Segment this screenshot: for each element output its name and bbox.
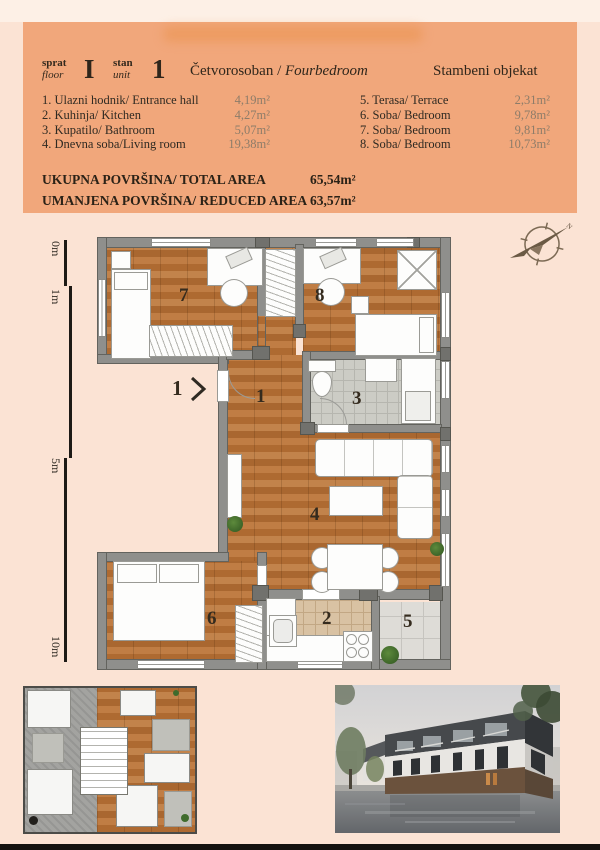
- floor-label: sprat floor: [42, 57, 66, 81]
- building-render: [335, 685, 560, 833]
- room-list-item: 8. Soba/ Bedroom10,73m²: [360, 137, 550, 152]
- compass-north-label: N: [565, 222, 574, 231]
- wall-left-lower: [98, 553, 106, 669]
- shower-tray: [406, 392, 430, 420]
- unit-label: stan unit: [113, 57, 133, 81]
- mini-staircase: [81, 728, 127, 794]
- window: [442, 446, 449, 472]
- mini-room: [28, 691, 70, 727]
- room-list-left: 1. Ulazni hodnik/ Entrance hall4,19m² 2.…: [42, 93, 270, 152]
- nightstand: [352, 297, 368, 313]
- sink-basin: [274, 620, 292, 642]
- pillow: [420, 318, 433, 352]
- mini-plant: [181, 814, 189, 822]
- wardrobe: [150, 326, 232, 356]
- room-list-right: 5. Terasa/ Terrace2,31m² 6. Soba/ Bedroo…: [360, 93, 550, 152]
- chair: [221, 280, 247, 306]
- mini-room: [33, 734, 63, 762]
- entrance-number: 1: [172, 376, 183, 401]
- room-name: 4. Dnevna soba/Living room: [42, 137, 186, 152]
- room-list-item: 5. Terasa/ Terrace2,31m²: [360, 93, 550, 108]
- mini-plant: [29, 816, 38, 825]
- scale-bar-segment: [64, 240, 67, 286]
- plan-label-bath: 3: [352, 388, 362, 410]
- plan-label-hall: 1: [256, 386, 266, 408]
- room-list-item: 4. Dnevna soba/Living room19,38m²: [42, 137, 270, 152]
- room-name: 7. Soba/ Bedroom: [360, 123, 451, 138]
- wardrobe: [398, 251, 436, 289]
- door-opening-entrance: [218, 371, 228, 401]
- window: [152, 239, 210, 246]
- mini-room: [153, 720, 189, 750]
- door-opening-bath: [318, 425, 348, 432]
- burner: [359, 648, 368, 657]
- terrace-door: [442, 534, 449, 586]
- unit-label-en: unit: [113, 69, 133, 81]
- page-footer-rule: [0, 844, 600, 850]
- plan-label-kitchen: 2: [322, 608, 332, 630]
- wall-pillar: [430, 586, 442, 600]
- total-area-value: 65,54m²: [310, 172, 356, 188]
- floor-value: I: [84, 54, 95, 85]
- wall-pillar: [441, 348, 450, 360]
- mini-room: [121, 691, 155, 715]
- room-name: 1. Ulazni hodnik/ Entrance hall: [42, 93, 199, 108]
- window: [138, 661, 204, 668]
- scale-label-1m: 1m: [48, 289, 63, 304]
- apartment-type: Četvorosoban / Fourbedroom: [190, 63, 368, 80]
- room-name: 6. Soba/ Bedroom: [360, 108, 451, 123]
- window: [442, 362, 449, 398]
- wall-room6-top: [98, 553, 228, 561]
- room-area: 4,27m²: [235, 108, 270, 123]
- room-list-item: 2. Kuhinja/ Kitchen4,27m²: [42, 108, 270, 123]
- wall-pillar: [256, 238, 269, 247]
- wall-hall-bed8: [296, 245, 303, 333]
- building-label: Stambeni objekat: [433, 63, 538, 80]
- pillow: [118, 565, 156, 582]
- scale-bar-segment: [64, 458, 67, 662]
- page-top-margin: [0, 0, 600, 22]
- coffee-table: [330, 487, 382, 515]
- room-name: 5. Terasa/ Terrace: [360, 93, 448, 108]
- dining-table: [328, 545, 382, 589]
- scale-bar-segment: [69, 286, 72, 458]
- sofa: [316, 440, 432, 476]
- scale-label-5m: 5m: [48, 458, 63, 473]
- mini-room: [145, 754, 189, 782]
- plant-icon: [430, 542, 444, 556]
- plan-label-bed8: 8: [315, 285, 325, 307]
- floor-label-en: floor: [42, 69, 66, 81]
- room-area: 10,73m²: [508, 137, 550, 152]
- scale-label-10m: 10m: [48, 636, 63, 657]
- room-area: 4,19m²: [235, 93, 270, 108]
- plan-label-terrace: 5: [403, 611, 413, 633]
- wall-pillar: [253, 586, 268, 600]
- compass-icon: N: [506, 214, 574, 272]
- room-name: 3. Kupatilo/ Bathroom: [42, 123, 155, 138]
- floor-overview-plan: [25, 688, 195, 832]
- wall-pillar: [441, 428, 450, 440]
- nightstand: [112, 252, 130, 268]
- entrance-arrow-icon: [190, 376, 208, 402]
- room-area: 5,07m²: [235, 123, 270, 138]
- wardrobe: [236, 606, 262, 662]
- shelf: [228, 455, 241, 517]
- room-area: 19,38m²: [228, 137, 270, 152]
- wall-pillar: [294, 325, 305, 337]
- plan-label-living: 4: [310, 504, 320, 526]
- room-list-item: 6. Soba/ Bedroom9,78m²: [360, 108, 550, 123]
- room-name: 8. Soba/ Bedroom: [360, 137, 451, 152]
- window: [442, 490, 449, 516]
- burner: [347, 635, 356, 644]
- wall-living-kitchen: [260, 590, 441, 599]
- room-list-item: 1. Ulazni hodnik/ Entrance hall4,19m²: [42, 93, 270, 108]
- reduced-area-label: UMANJENA POVRŠINA/ REDUCED AREA: [42, 193, 307, 209]
- plan-label-bed6: 6: [207, 608, 217, 630]
- room-list-item: 7. Soba/ Bedroom9,81m²: [360, 123, 550, 138]
- unit-label-sr: stan: [113, 57, 133, 69]
- window: [377, 239, 413, 246]
- watermark-logo: [163, 26, 423, 42]
- apartment-type-sr: Četvorosoban /: [190, 63, 281, 79]
- burner: [347, 648, 356, 657]
- window: [99, 280, 105, 336]
- total-area-label: UKUPNA POVRŠINA/ TOTAL AREA: [42, 172, 266, 188]
- wall-pillar: [253, 347, 269, 359]
- plan-label-bed7: 7: [179, 285, 189, 307]
- room-list-item: 3. Kupatilo/ Bathroom5,07m²: [42, 123, 270, 138]
- scale-label-0m: 0m: [48, 241, 63, 256]
- pillow: [115, 273, 147, 289]
- reduced-area-value: 63,57m²: [310, 193, 356, 209]
- header-panel: sprat floor I stan unit 1 Četvorosoban /…: [23, 22, 577, 213]
- burner: [359, 635, 368, 644]
- wall-pillar: [301, 423, 314, 434]
- floor-label-sr: sprat: [42, 57, 66, 69]
- plant-icon: [227, 516, 243, 532]
- apartment-type-en: Fourbedroom: [285, 63, 368, 79]
- unit-value: 1: [152, 54, 166, 85]
- room-area: 9,78m²: [515, 108, 550, 123]
- room-name: 2. Kuhinja/ Kitchen: [42, 108, 141, 123]
- window: [442, 293, 449, 337]
- hall-closet: [266, 250, 295, 316]
- plant-icon: [381, 646, 399, 664]
- room-area: 2,31m²: [515, 93, 550, 108]
- room-area: 9,81m²: [515, 123, 550, 138]
- washbasin: [366, 359, 396, 381]
- mini-room: [28, 770, 72, 814]
- window: [316, 239, 356, 246]
- pillow: [160, 565, 198, 582]
- window: [298, 661, 342, 668]
- sofa-corner: [398, 476, 432, 538]
- wall-terrace-left: [372, 597, 379, 669]
- toilet-tank: [309, 361, 335, 371]
- mini-plant: [173, 690, 179, 696]
